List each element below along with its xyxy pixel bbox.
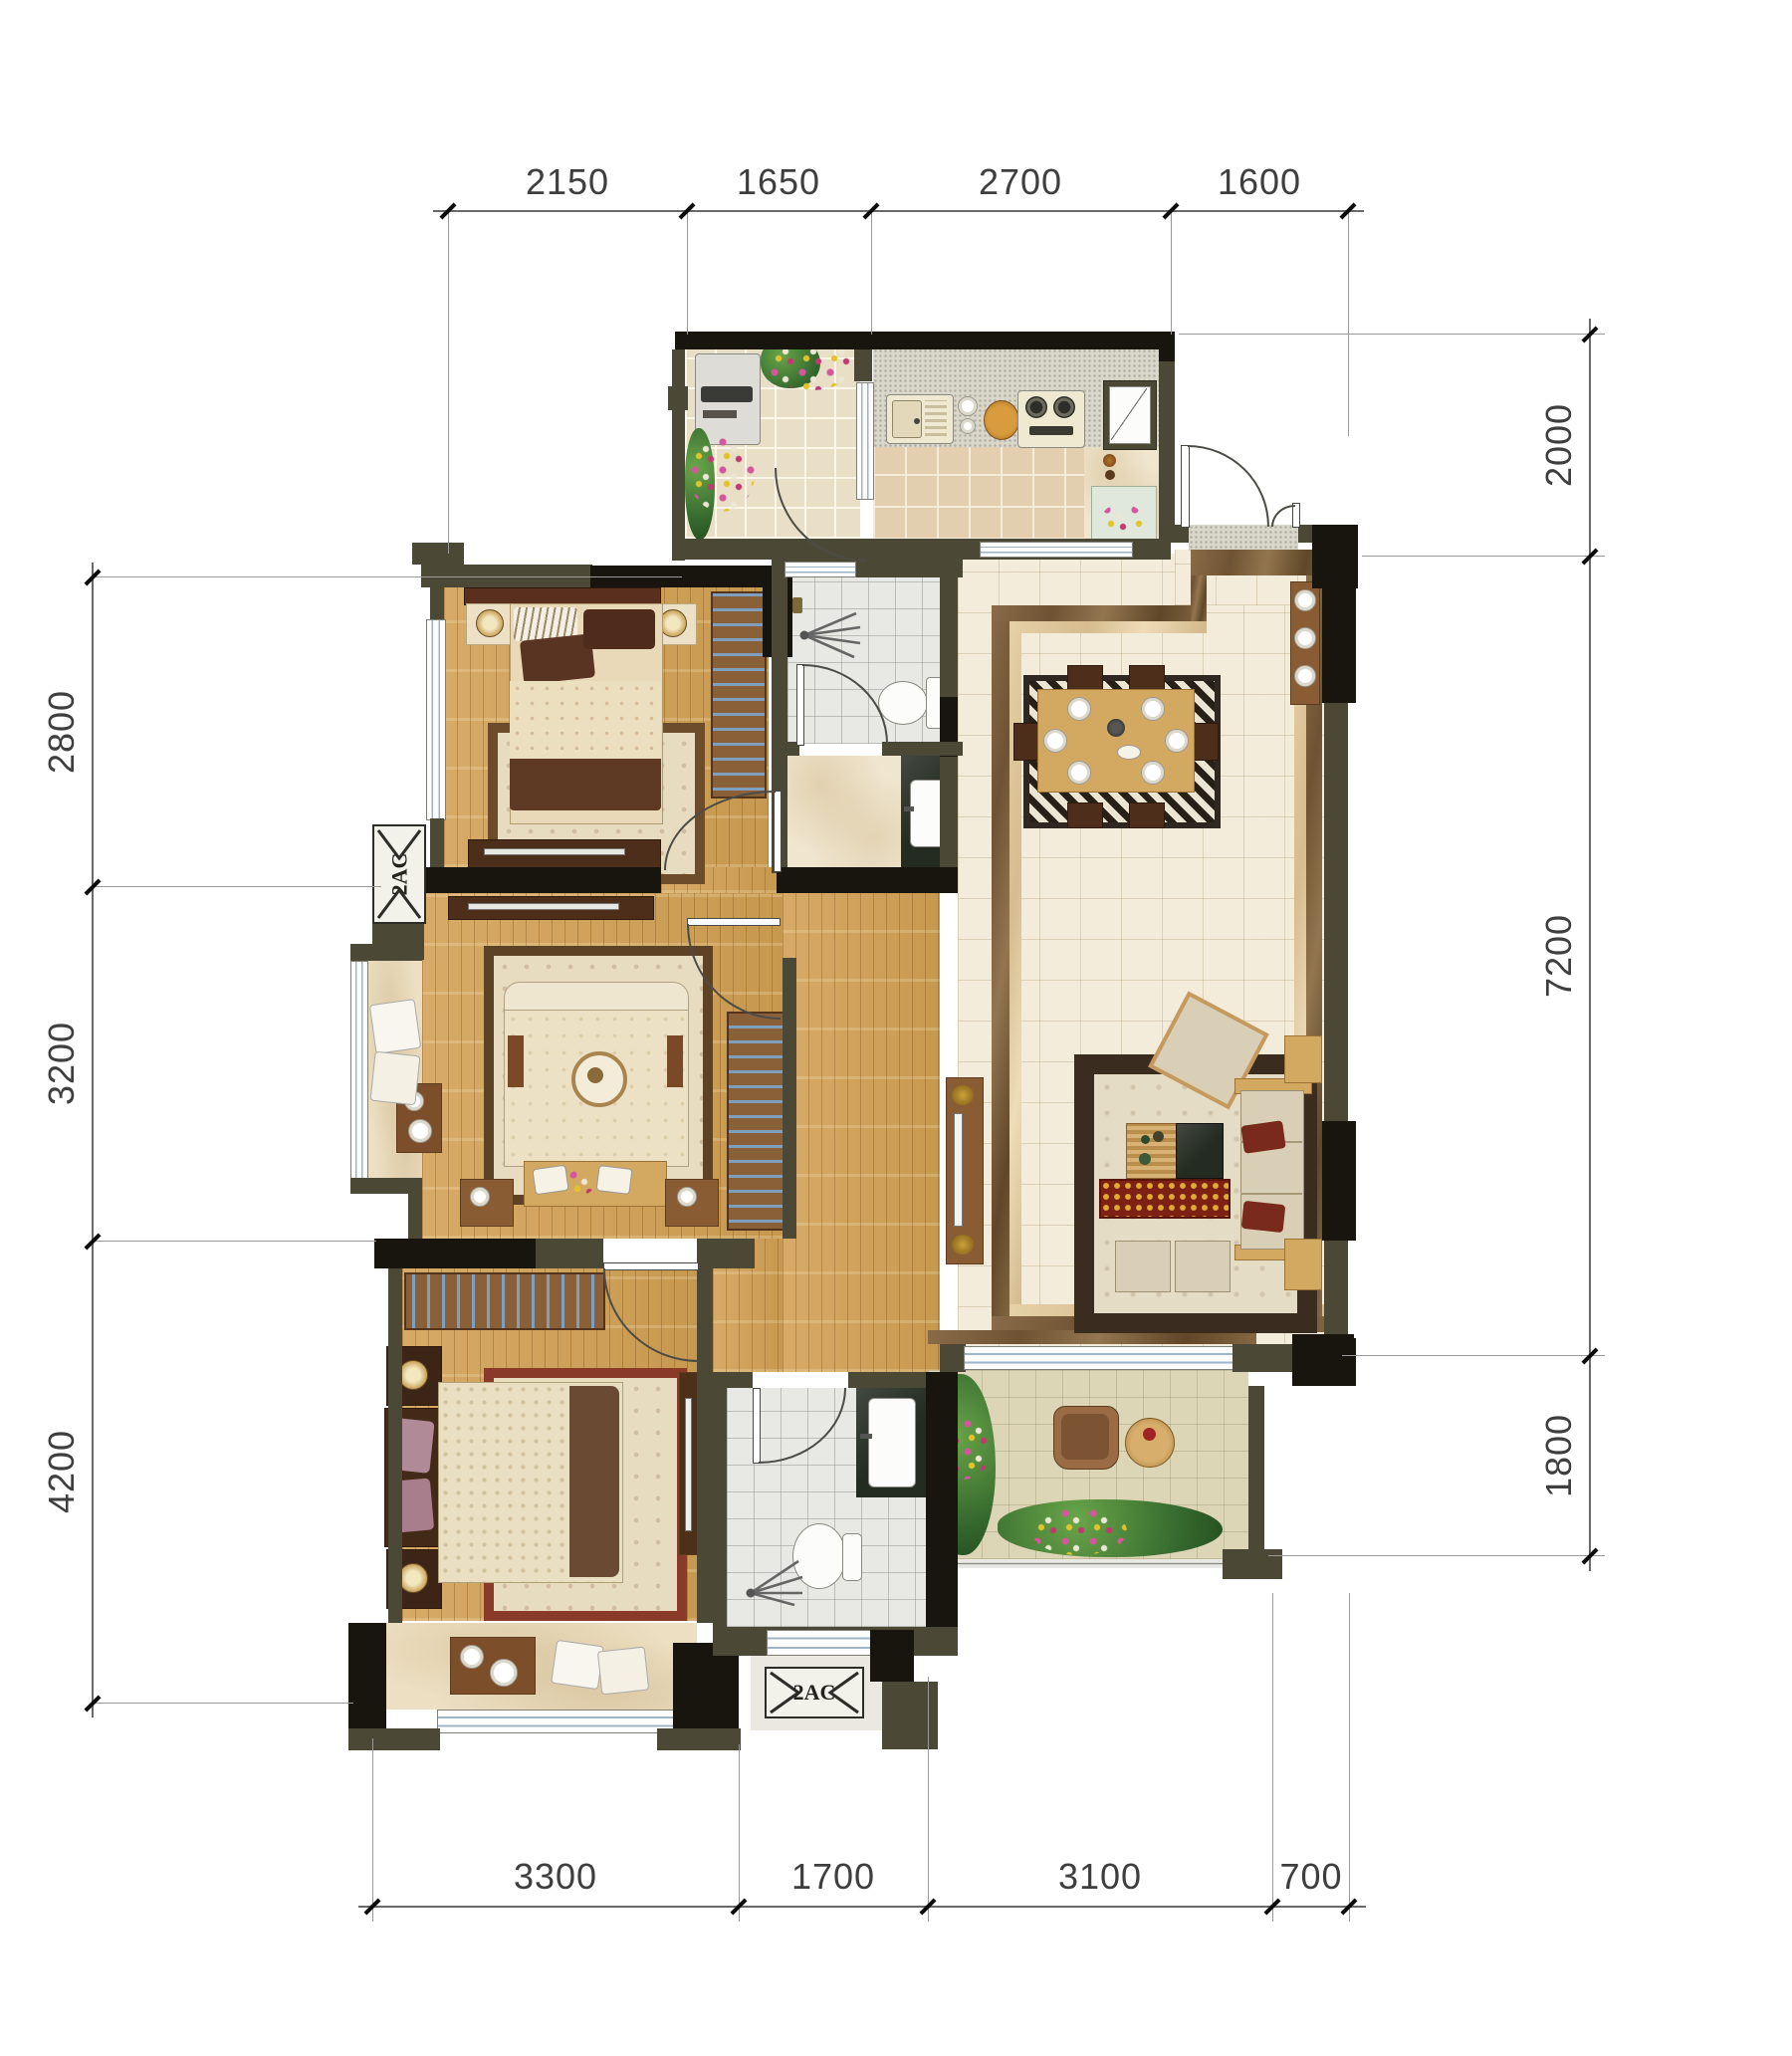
extension-line xyxy=(1342,1355,1605,1356)
washing-machine-slot xyxy=(701,386,753,402)
bedroom1-window xyxy=(426,619,446,820)
wall-segment xyxy=(1322,1121,1356,1241)
ottoman xyxy=(1175,1241,1231,1292)
tv-icon xyxy=(954,1113,963,1227)
table-decor xyxy=(1153,1131,1164,1142)
wall-segment xyxy=(672,349,685,561)
wall-segment xyxy=(536,1239,603,1268)
place-setting xyxy=(1067,697,1091,721)
wall-segment xyxy=(940,1344,966,1372)
dresser-rail xyxy=(484,848,625,855)
wall-segment xyxy=(772,742,799,756)
console-decor xyxy=(1294,589,1316,611)
bench-pillow xyxy=(596,1165,633,1195)
bedroom3-bay-sill xyxy=(386,1623,697,1710)
dish xyxy=(1117,745,1141,760)
extension-line xyxy=(1179,334,1605,335)
teacup xyxy=(408,1119,432,1143)
bay-cushion xyxy=(551,1640,604,1690)
dining-chair xyxy=(1129,802,1165,828)
lamp-icon xyxy=(659,609,687,637)
dining-chair xyxy=(1067,802,1103,828)
wall-segment xyxy=(675,332,1175,349)
faucet xyxy=(914,418,920,424)
dim-label-top-4: 1600 xyxy=(1200,161,1319,203)
balcony-slider-window xyxy=(964,1346,1236,1370)
tv-decor xyxy=(952,1085,974,1105)
plate xyxy=(960,418,976,434)
toilet-icon xyxy=(878,681,928,725)
wall-segment xyxy=(1232,1344,1294,1372)
food-tray xyxy=(984,400,1019,440)
extension-line xyxy=(93,886,381,887)
extension-line xyxy=(687,211,688,335)
duvet xyxy=(510,681,661,771)
dining-chair xyxy=(1193,723,1219,761)
dim-label-left-2: 3200 xyxy=(41,1022,83,1105)
flowers xyxy=(1031,1507,1127,1555)
bed-medallion-center xyxy=(587,1067,603,1083)
dining-chair xyxy=(1013,723,1039,761)
table-decor xyxy=(1141,1135,1150,1144)
place-setting xyxy=(1043,729,1067,753)
teacup xyxy=(490,1659,518,1687)
sink-drainboard xyxy=(925,400,947,436)
ottoman xyxy=(1115,1241,1171,1292)
place-setting xyxy=(1067,761,1091,785)
extension-line xyxy=(928,1677,929,1922)
ac-unit-left: 2AC xyxy=(372,824,426,924)
bedroom3-bay-window xyxy=(437,1710,674,1733)
wall-segment xyxy=(1223,1549,1282,1579)
bay-cushion xyxy=(597,1647,649,1696)
bed-throw xyxy=(510,759,661,810)
decor-pot xyxy=(1105,470,1115,480)
vanity-floor xyxy=(787,756,901,873)
extension-line xyxy=(93,1703,353,1704)
wall-segment xyxy=(422,867,661,893)
wall-segment xyxy=(350,944,422,961)
dim-label-bottom-3: 3100 xyxy=(1040,1856,1160,1898)
patio-table xyxy=(1125,1418,1175,1468)
extension-line xyxy=(739,1744,740,1922)
kitchen-floor xyxy=(873,447,1084,540)
table-decor xyxy=(1139,1153,1151,1165)
place-setting xyxy=(1141,761,1165,785)
wall-segment xyxy=(926,1372,958,1655)
teapot xyxy=(1107,719,1125,737)
burner xyxy=(1025,396,1047,418)
extension-line xyxy=(1348,211,1349,436)
extension-line xyxy=(1171,211,1172,335)
side-table xyxy=(1284,1239,1322,1290)
sofa-seam xyxy=(1240,1193,1302,1195)
wall-segment xyxy=(430,587,444,619)
wall-segment xyxy=(350,1178,422,1194)
wall-segment xyxy=(697,1239,755,1268)
extension-line xyxy=(1362,556,1605,557)
shower-spray-icon xyxy=(741,1549,806,1609)
bath-decor xyxy=(792,597,802,613)
dim-label-bottom-2: 1700 xyxy=(774,1856,893,1898)
toilet-tank xyxy=(842,1533,862,1581)
bench-pillow xyxy=(532,1165,568,1195)
console-decor xyxy=(1294,627,1316,649)
wall-segment xyxy=(772,577,787,744)
casement-line xyxy=(1111,388,1147,440)
dimension-line-bottom xyxy=(358,1906,1366,1908)
tv-icon xyxy=(685,1398,692,1531)
wall-segment xyxy=(1292,1334,1354,1386)
wall-segment xyxy=(430,818,444,867)
wall-segment xyxy=(348,1623,386,1732)
dimension-line-top xyxy=(433,210,1364,212)
wall-segment xyxy=(412,543,464,565)
door-swing-arc xyxy=(1271,505,1295,527)
extension-line xyxy=(93,1241,376,1242)
dining-chair xyxy=(1067,665,1103,691)
dining-chair xyxy=(1129,665,1165,691)
extension-line xyxy=(372,1738,373,1922)
wall-segment xyxy=(777,867,958,893)
decor-pot xyxy=(1103,454,1116,467)
dim-label-top-1: 2150 xyxy=(508,161,627,203)
kitchen-pass-window xyxy=(980,542,1133,558)
wall-segment xyxy=(870,1630,914,1682)
lamp-icon xyxy=(476,609,504,637)
ac-unit-bottom: 2AC xyxy=(765,1667,864,1718)
pillow xyxy=(583,609,655,649)
dimension-line-left xyxy=(92,563,94,1717)
extension-line xyxy=(448,211,449,554)
wall-segment xyxy=(657,1728,741,1750)
place-setting xyxy=(1141,697,1165,721)
lounge-cushion xyxy=(1061,1414,1109,1460)
wall-segment xyxy=(854,349,872,381)
wall-segment xyxy=(882,1682,938,1749)
wall-segment xyxy=(713,1372,753,1388)
dimension-line-right xyxy=(1589,319,1591,1571)
dim-label-bottom-4: 700 xyxy=(1251,1856,1371,1898)
faucet xyxy=(860,1434,872,1439)
lamp-icon xyxy=(398,1360,428,1390)
sofa-pillow xyxy=(1241,1201,1286,1233)
marble-border xyxy=(992,605,1009,1332)
dim-label-bottom-1: 3300 xyxy=(496,1856,615,1898)
lamp-icon xyxy=(398,1563,428,1593)
coffee-table-wood xyxy=(1126,1123,1178,1179)
marble-border xyxy=(1009,621,1207,633)
dim-label-right-2: 7200 xyxy=(1538,914,1580,998)
faucet xyxy=(904,806,914,811)
flower-pot xyxy=(1143,1428,1156,1441)
marble-border xyxy=(992,605,1207,621)
wardrobe xyxy=(711,591,767,799)
wall-segment xyxy=(673,1643,739,1734)
bathroom2-window xyxy=(767,1630,872,1656)
balcony-railing xyxy=(928,1559,1227,1568)
wall-segment xyxy=(374,1239,536,1268)
corridor-floor xyxy=(783,893,940,1372)
shower-spray-icon xyxy=(794,605,864,665)
ac-label: 2AC xyxy=(386,853,412,896)
dresser-rail xyxy=(468,903,619,910)
master-bay-window xyxy=(350,961,368,1180)
dim-label-left-1: 2800 xyxy=(41,690,83,774)
flowers xyxy=(689,436,755,512)
extension-line xyxy=(1268,1555,1605,1556)
dim-label-top-2: 1650 xyxy=(719,161,838,203)
bed-trim xyxy=(508,1035,524,1087)
ornate-runner xyxy=(1099,1179,1231,1219)
bathroom1-window xyxy=(784,562,856,577)
dim-label-right-1: 2000 xyxy=(1538,403,1580,487)
wall-segment xyxy=(348,1728,440,1750)
flowers xyxy=(1101,504,1143,536)
wall-segment xyxy=(783,958,796,1239)
decor xyxy=(677,1187,697,1207)
bay-cushion xyxy=(369,999,422,1054)
extension-line xyxy=(871,211,872,335)
closet xyxy=(404,1272,605,1330)
burner xyxy=(1053,396,1075,418)
wall-segment xyxy=(388,1268,402,1623)
plate xyxy=(958,396,978,416)
wall-segment xyxy=(713,1388,727,1627)
sink-icon xyxy=(868,1398,916,1487)
decor xyxy=(470,1187,490,1207)
console-decor xyxy=(1294,665,1316,687)
bay-cushion xyxy=(370,1051,421,1106)
extension-line xyxy=(93,576,682,577)
door-swing-arc xyxy=(1188,445,1269,527)
bed-throw xyxy=(569,1386,619,1577)
washing-machine-panel xyxy=(703,410,737,418)
bench-flowers xyxy=(567,1169,595,1195)
entry-threshold xyxy=(1189,525,1298,551)
sofa-pillow xyxy=(1240,1120,1285,1154)
wall-segment xyxy=(697,1268,713,1623)
bed-trim xyxy=(667,1035,683,1087)
teacup xyxy=(460,1645,484,1669)
wall-segment xyxy=(882,742,963,756)
wall-segment xyxy=(1159,332,1175,361)
stove-controls xyxy=(1029,426,1073,435)
side-table xyxy=(1284,1035,1322,1083)
tv-decor xyxy=(952,1235,974,1255)
wall-segment xyxy=(1248,1386,1264,1555)
place-setting xyxy=(1165,729,1189,753)
ac-label: 2AC xyxy=(793,1680,836,1706)
coffee-table-stone xyxy=(1176,1123,1224,1179)
wall-segment xyxy=(1322,554,1356,703)
wardrobe xyxy=(727,1012,784,1231)
floor-plan: 2AC 2AC xyxy=(0,0,1792,2056)
dim-label-top-3: 2700 xyxy=(961,161,1080,203)
dim-label-left-3: 4200 xyxy=(41,1430,83,1513)
wall-segment xyxy=(408,1194,422,1239)
dim-label-right-3: 1800 xyxy=(1538,1414,1580,1497)
